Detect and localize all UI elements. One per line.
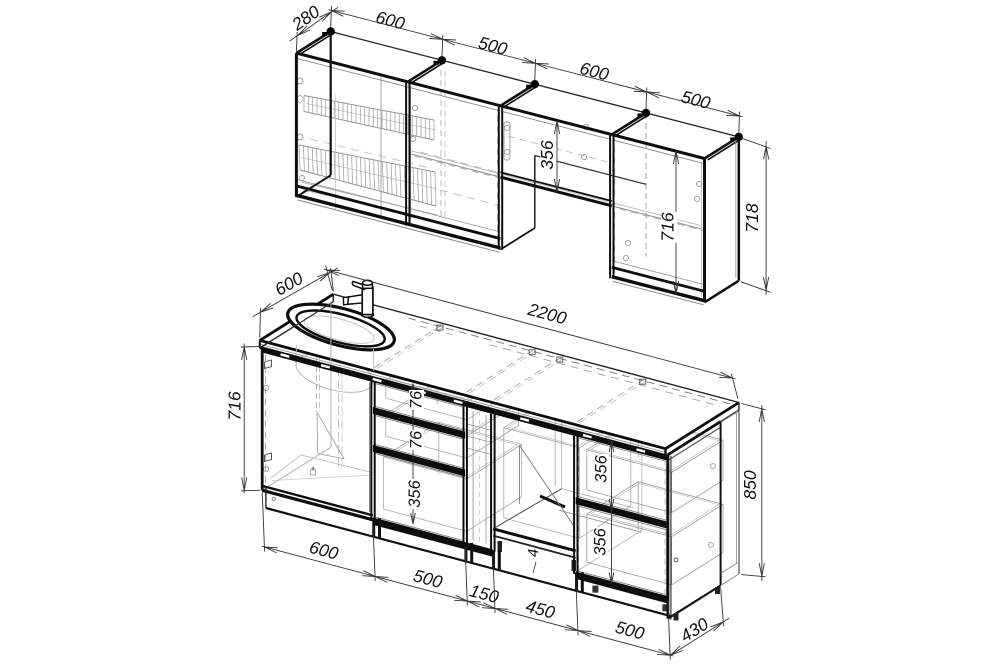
svg-text:76: 76 [407,430,425,449]
svg-text:356: 356 [537,140,557,169]
svg-text:718: 718 [742,203,762,232]
svg-text:356: 356 [592,454,610,482]
svg-text:716: 716 [658,212,678,241]
svg-text:850: 850 [740,470,760,499]
svg-text:4: 4 [525,549,542,557]
svg-text:356: 356 [406,479,424,507]
svg-text:716: 716 [225,391,245,420]
svg-text:356: 356 [591,527,609,555]
svg-text:76: 76 [407,390,425,409]
